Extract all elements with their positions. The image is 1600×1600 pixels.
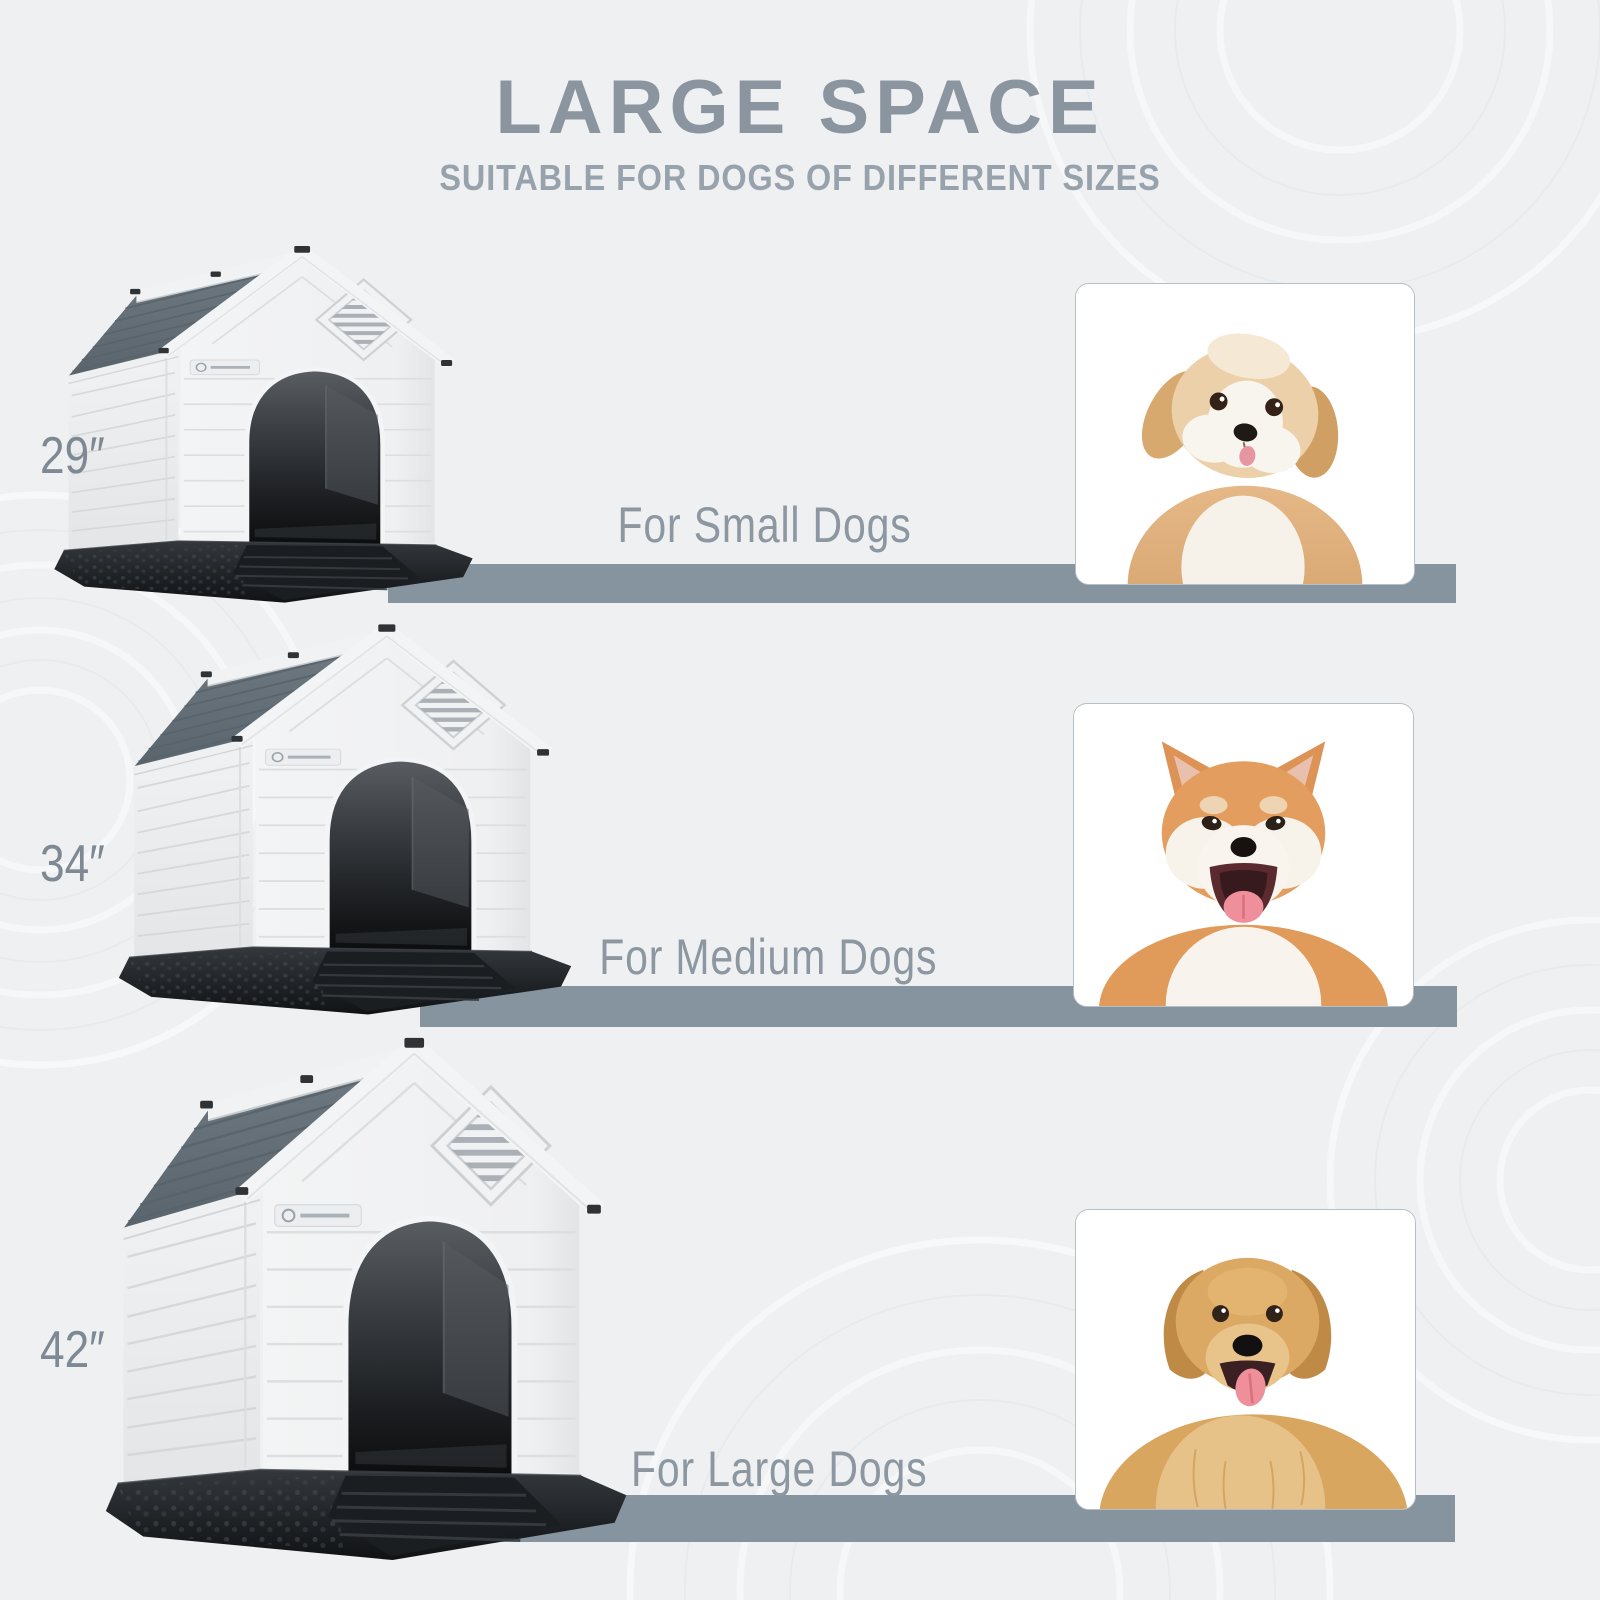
size-label-29: 29″ <box>40 430 105 482</box>
caption-for-small-dogs: For Small Dogs <box>618 500 912 550</box>
dog-house-34in-illustration <box>112 620 590 1016</box>
medium-dog-photo <box>1074 704 1413 1006</box>
small-dog-photo <box>1076 284 1414 584</box>
page-subtitle: SUITABLE FOR DOGS OF DIFFERENT SIZES <box>80 160 1520 196</box>
infographic-canvas: LARGE SPACE SUITABLE FOR DOGS OF DIFFERE… <box>0 0 1600 1600</box>
size-label-34: 34″ <box>40 838 105 890</box>
size-label-42: 42″ <box>40 1324 105 1376</box>
large-dog-photo-card <box>1075 1209 1416 1510</box>
caption-for-medium-dogs: For Medium Dogs <box>599 932 937 982</box>
medium-dog-photo-card <box>1073 703 1414 1007</box>
dog-house-42in-illustration <box>98 1032 648 1562</box>
caption-for-large-dogs: For Large Dogs <box>631 1444 927 1494</box>
page-title: LARGE SPACE <box>0 70 1600 146</box>
small-dog-photo-card <box>1075 283 1415 585</box>
dog-house-29in-illustration <box>48 242 490 604</box>
large-dog-photo <box>1076 1210 1415 1509</box>
